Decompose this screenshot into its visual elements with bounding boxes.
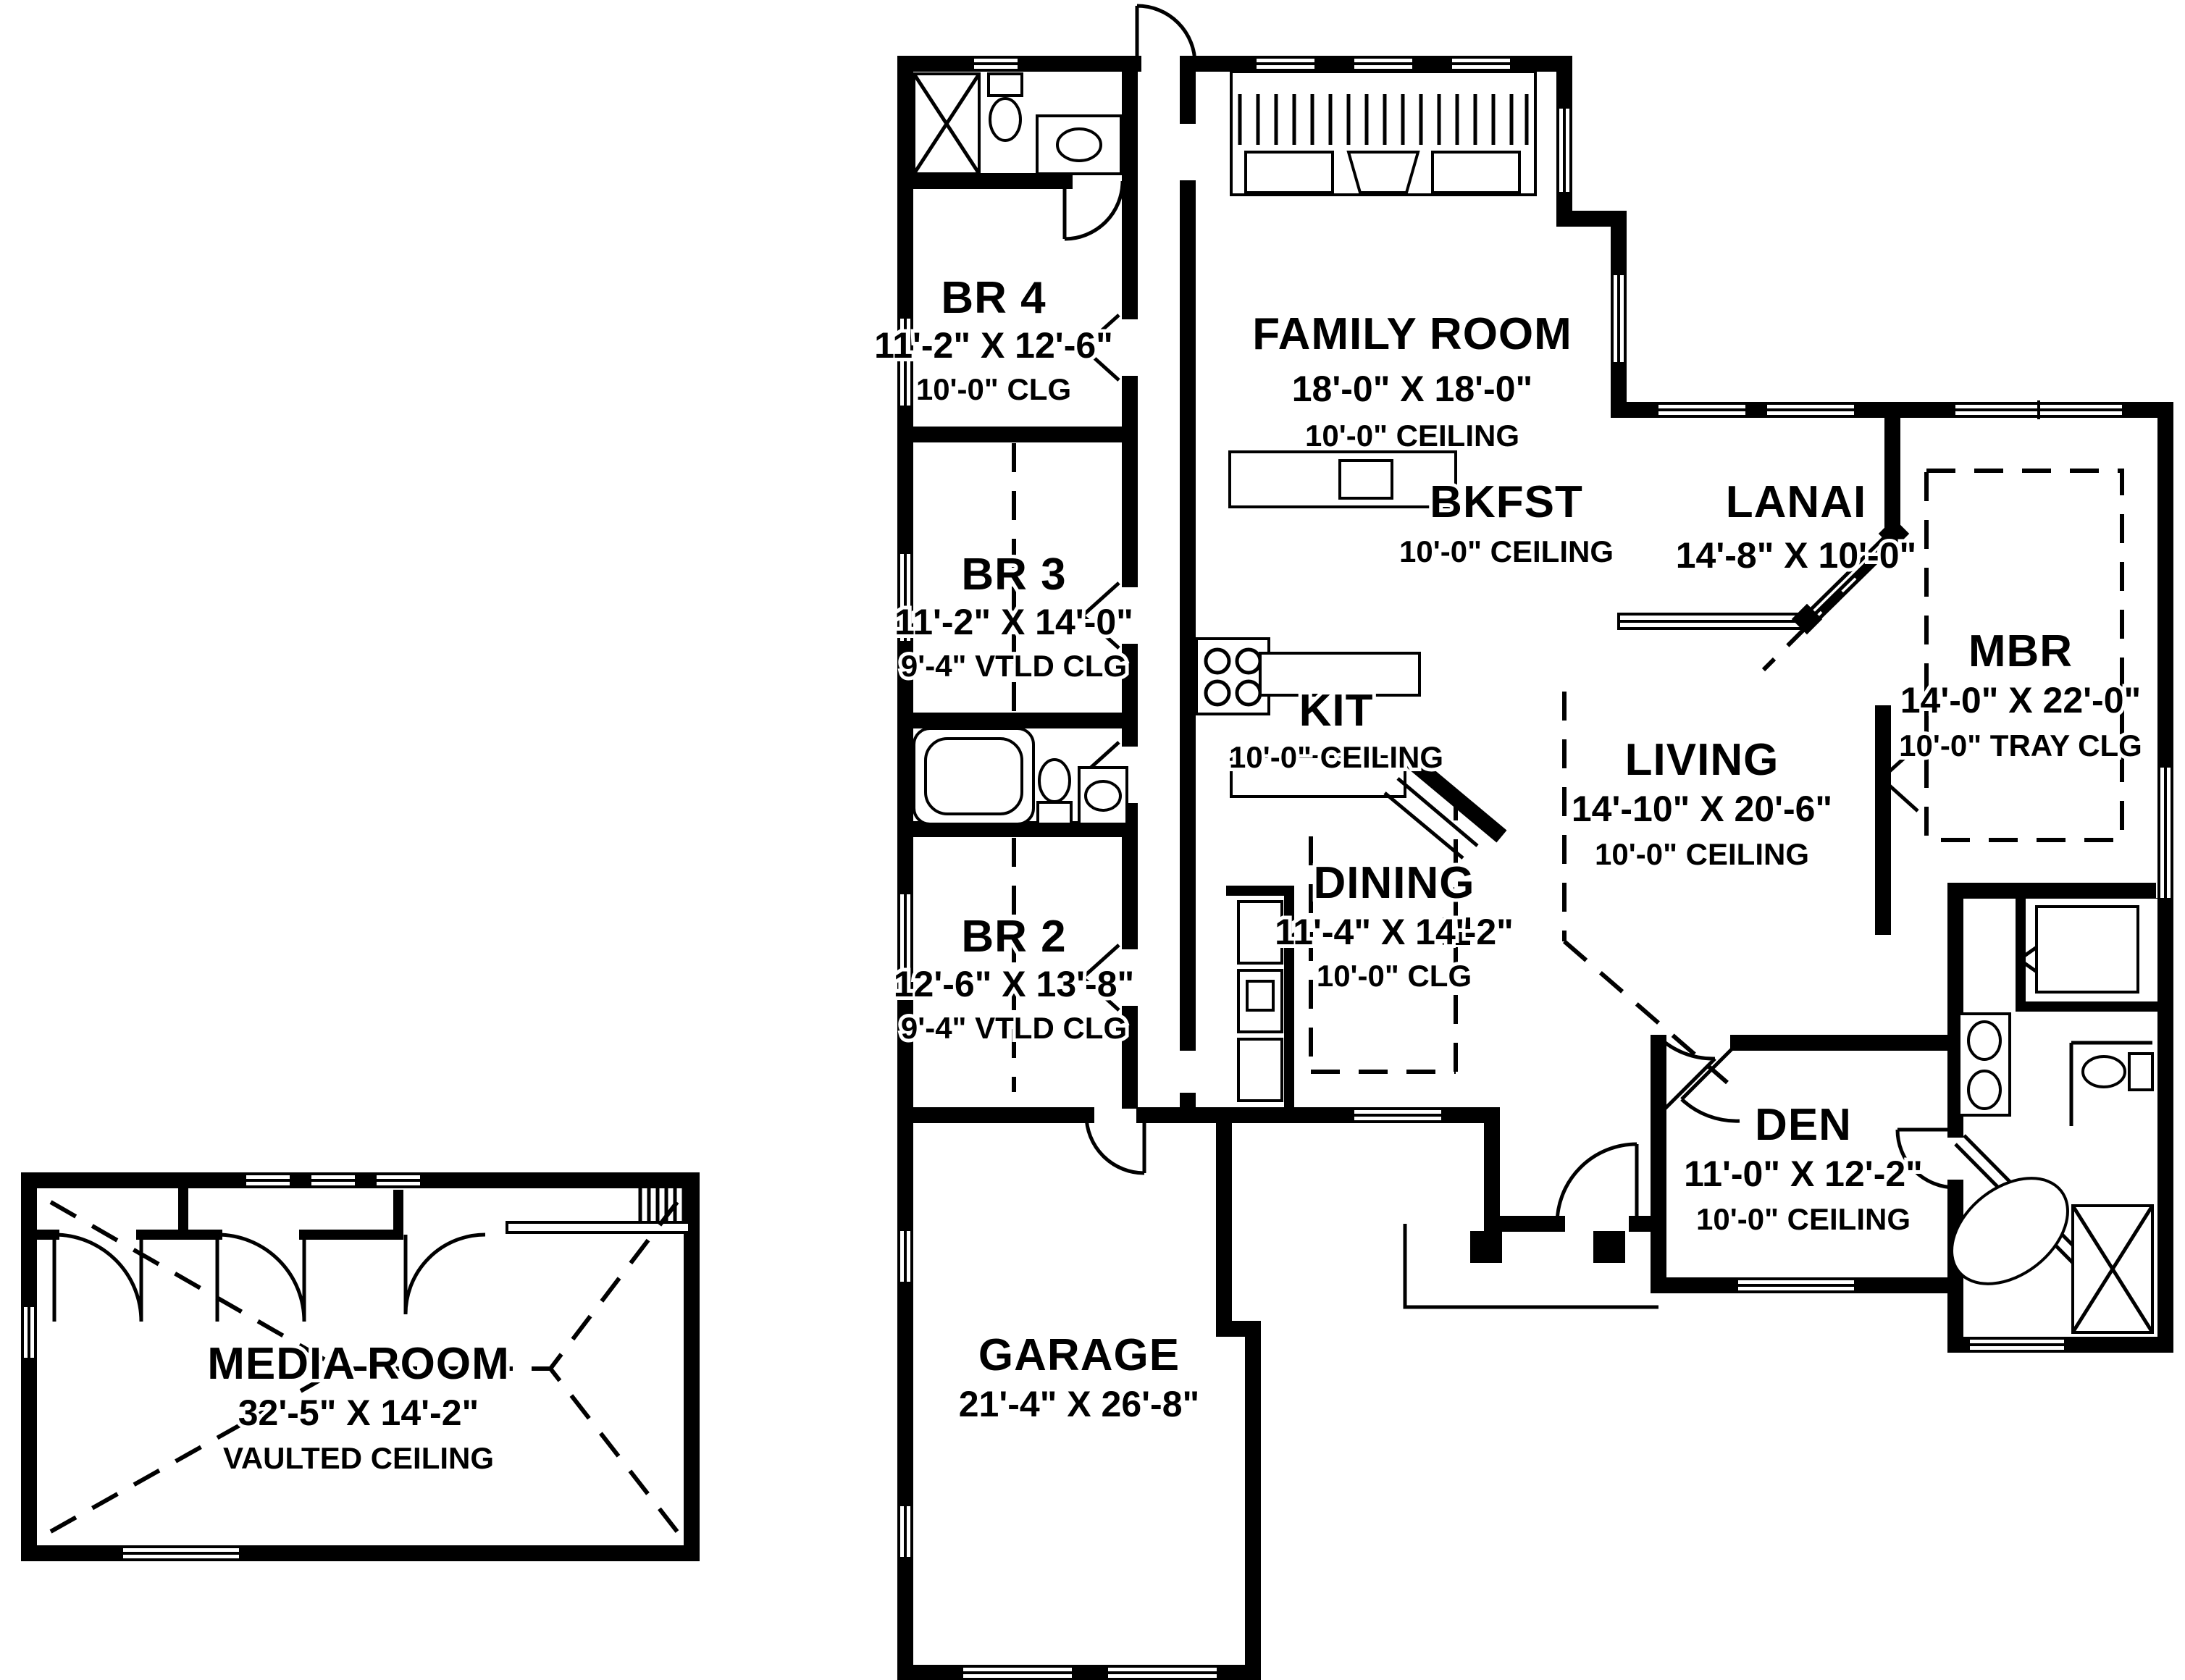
wic-shelves — [2037, 907, 2138, 992]
master-bath-fixtures — [1932, 907, 2152, 1332]
room-label-family: FAMILY ROOM 18'-0" X 18'-0" 10'-0" CEILI… — [1252, 309, 1572, 453]
svg-text:BR 3: BR 3 — [961, 550, 1066, 600]
svg-text:14'-10" X 20'-6": 14'-10" X 20'-6" — [1572, 789, 1832, 829]
sink-icon — [1968, 1022, 2000, 1059]
svg-text:10'-0" CLG: 10'-0" CLG — [1317, 959, 1472, 993]
fireplace — [1231, 72, 1535, 195]
svg-text:9'-4" VTLD CLG: 9'-4" VTLD CLG — [901, 1011, 1127, 1045]
svg-text:10'-0" CEILING: 10'-0" CEILING — [1696, 1202, 1911, 1236]
svg-text:BR 4: BR 4 — [941, 273, 1046, 323]
fireplace-cabinet-right — [1433, 152, 1519, 193]
room-label-bkfst: BKFST 10'-0" CEILING — [1399, 477, 1614, 568]
svg-text:VAULTED CEILING: VAULTED CEILING — [223, 1441, 494, 1475]
svg-text:GARAGE: GARAGE — [978, 1330, 1180, 1380]
room-label-garage: GARAGE 21'-4" X 26'-8" — [959, 1330, 1199, 1424]
front-door-arc — [1557, 1144, 1637, 1224]
svg-text:MBR: MBR — [1968, 626, 2073, 676]
svg-text:KIT: KIT — [1299, 686, 1374, 736]
range-icon — [1196, 639, 1269, 714]
room-label-mbr: MBR 14'-0" X 22'-0" 10'-0" TRAY CLG — [1899, 626, 2142, 763]
svg-text:14'-8" X 10'-0": 14'-8" X 10'-0" — [1676, 535, 1916, 576]
svg-text:10'-0" CEILING: 10'-0" CEILING — [1595, 837, 1809, 871]
svg-text:LIVING: LIVING — [1625, 735, 1779, 785]
svg-text:10'-0" CEILING: 10'-0" CEILING — [1399, 534, 1614, 568]
svg-text:11'-2" X 12'-6": 11'-2" X 12'-6" — [874, 325, 1113, 366]
svg-text:10'-0" TRAY CLG: 10'-0" TRAY CLG — [1899, 728, 2142, 763]
svg-text:32'-5" X 14'-2": 32'-5" X 14'-2" — [238, 1393, 479, 1433]
room-label-media: MEDIA ROOM 32'-5" X 14'-2" VAULTED CEILI… — [207, 1339, 510, 1475]
sink-icon — [1086, 781, 1120, 810]
svg-text:MEDIA ROOM: MEDIA ROOM — [207, 1339, 510, 1389]
fireplace-cabinet-left — [1246, 152, 1333, 193]
svg-text:14'-0" X 22'-0": 14'-0" X 22'-0" — [1900, 680, 2141, 721]
sink-icon — [1057, 129, 1101, 161]
floor-plan-drawing: BR 4 11'-2" X 12'-6" 10'-0" CLG FAMILY R… — [0, 0, 2185, 1680]
bath1-fixtures — [914, 74, 1121, 174]
windows — [20, 54, 2175, 1680]
room-label-living: LIVING 14'-10" X 20'-6" 10'-0" CEILING — [1572, 735, 1832, 871]
porch-column — [1470, 1231, 1502, 1263]
svg-text:18'-0" X 18'-0": 18'-0" X 18'-0" — [1292, 369, 1532, 409]
svg-text:BR 2: BR 2 — [961, 912, 1066, 962]
side-entry-door-arc — [1137, 6, 1195, 64]
svg-text:10'-0" CLG: 10'-0" CLG — [916, 372, 1071, 406]
porch-column — [1593, 1231, 1625, 1263]
toilet-icon — [990, 98, 1020, 140]
room-label-br2: BR 2 12'-6" X 13'-8" 9'-4" VTLD CLG — [894, 912, 1134, 1045]
svg-text:DEN: DEN — [1755, 1100, 1852, 1150]
pantry-cabinet-2 — [1238, 1039, 1282, 1101]
floor-plan: BR 4 11'-2" X 12'-6" 10'-0" CLG FAMILY R… — [0, 0, 2185, 1680]
toilet-icon — [2083, 1057, 2125, 1087]
svg-text:10'-0" CEILING: 10'-0" CEILING — [1229, 740, 1443, 774]
svg-text:FAMILY ROOM: FAMILY ROOM — [1252, 309, 1572, 359]
toilet-tank — [1038, 802, 1071, 824]
svg-text:11'-0" X 12'-2": 11'-0" X 12'-2" — [1684, 1154, 1923, 1194]
toilet-tank — [989, 74, 1022, 96]
bath2-fixtures — [914, 728, 1127, 824]
garage-entry-door-arc — [1086, 1115, 1144, 1173]
fireplace-box — [1349, 152, 1418, 193]
svg-text:LANAI: LANAI — [1726, 477, 1866, 527]
svg-text:9'-4" VTLD CLG: 9'-4" VTLD CLG — [901, 649, 1127, 683]
toilet-icon — [1039, 760, 1070, 802]
room-label-dining: DINING 11'-4" X 14'-2" 10'-0" CLG — [1275, 858, 1514, 993]
room-label-lanai: LANAI 14'-8" X 10'-0" — [1676, 477, 1916, 576]
room-label-br3: BR 3 11'-2" X 14'-0" 9'-4" VTLD CLG — [894, 550, 1133, 683]
svg-text:21'-4" X 26'-8": 21'-4" X 26'-8" — [959, 1384, 1199, 1424]
front-porch — [1405, 1224, 1658, 1307]
kitchen-sink — [1340, 461, 1392, 498]
svg-text:DINING: DINING — [1314, 858, 1475, 908]
svg-text:10'-0" CEILING: 10'-0" CEILING — [1305, 419, 1519, 453]
svg-text:11'-2" X 14'-0": 11'-2" X 14'-0" — [894, 602, 1133, 642]
svg-text:11'-4" X 14'-2": 11'-4" X 14'-2" — [1275, 912, 1514, 952]
svg-text:12'-6" X 13'-8": 12'-6" X 13'-8" — [894, 964, 1134, 1004]
sink-icon — [1968, 1071, 2000, 1109]
toilet-tank — [2129, 1054, 2152, 1090]
bath1-door-arc — [1065, 181, 1123, 239]
svg-text:BKFST: BKFST — [1430, 477, 1583, 527]
media-room-closet-doors — [54, 1235, 485, 1322]
